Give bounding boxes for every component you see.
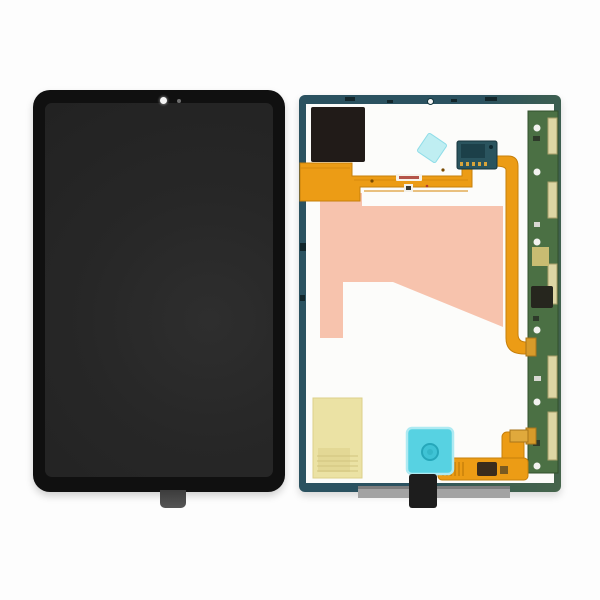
frame-mark (300, 295, 305, 301)
back-panel-interior (306, 104, 554, 483)
frame-camera-hole (427, 98, 434, 105)
front-sensor-dot (177, 99, 181, 103)
tablet-back-panel (299, 95, 561, 492)
frame-mark (387, 100, 393, 103)
front-camera-dot (160, 97, 167, 104)
frame-mark (485, 97, 497, 101)
front-connector-tab (160, 490, 186, 508)
tablet-screen (45, 103, 273, 477)
frame-mark (451, 99, 457, 102)
frame-mark (345, 97, 355, 101)
tablet-front-panel (33, 90, 285, 492)
frame-mark (300, 243, 306, 251)
product-photo-stage (0, 0, 600, 600)
